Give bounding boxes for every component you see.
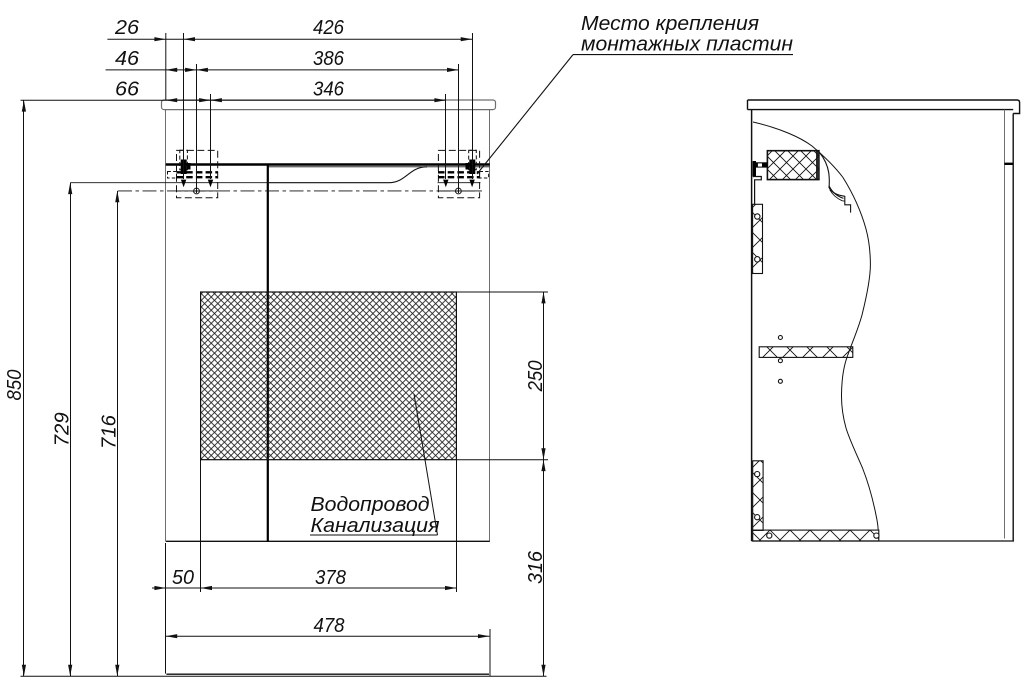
svg-text:50: 50 bbox=[172, 566, 195, 589]
svg-text:346: 346 bbox=[313, 78, 345, 101]
svg-text:386: 386 bbox=[313, 47, 345, 70]
svg-text:46: 46 bbox=[115, 47, 140, 70]
svg-text:378: 378 bbox=[315, 566, 347, 589]
svg-text:850: 850 bbox=[3, 369, 26, 401]
svg-text:426: 426 bbox=[313, 16, 345, 39]
svg-text:Канализация: Канализация bbox=[311, 514, 440, 537]
svg-text:716: 716 bbox=[98, 414, 121, 449]
svg-text:478: 478 bbox=[314, 614, 346, 637]
svg-text:66: 66 bbox=[115, 78, 140, 101]
svg-text:316: 316 bbox=[524, 550, 547, 584]
svg-text:монтажных пластин: монтажных пластин bbox=[581, 33, 793, 56]
svg-text:Водопровод: Водопровод bbox=[311, 493, 430, 516]
svg-text:250: 250 bbox=[524, 360, 547, 392]
svg-text:729: 729 bbox=[51, 412, 74, 446]
svg-text:26: 26 bbox=[114, 16, 140, 39]
